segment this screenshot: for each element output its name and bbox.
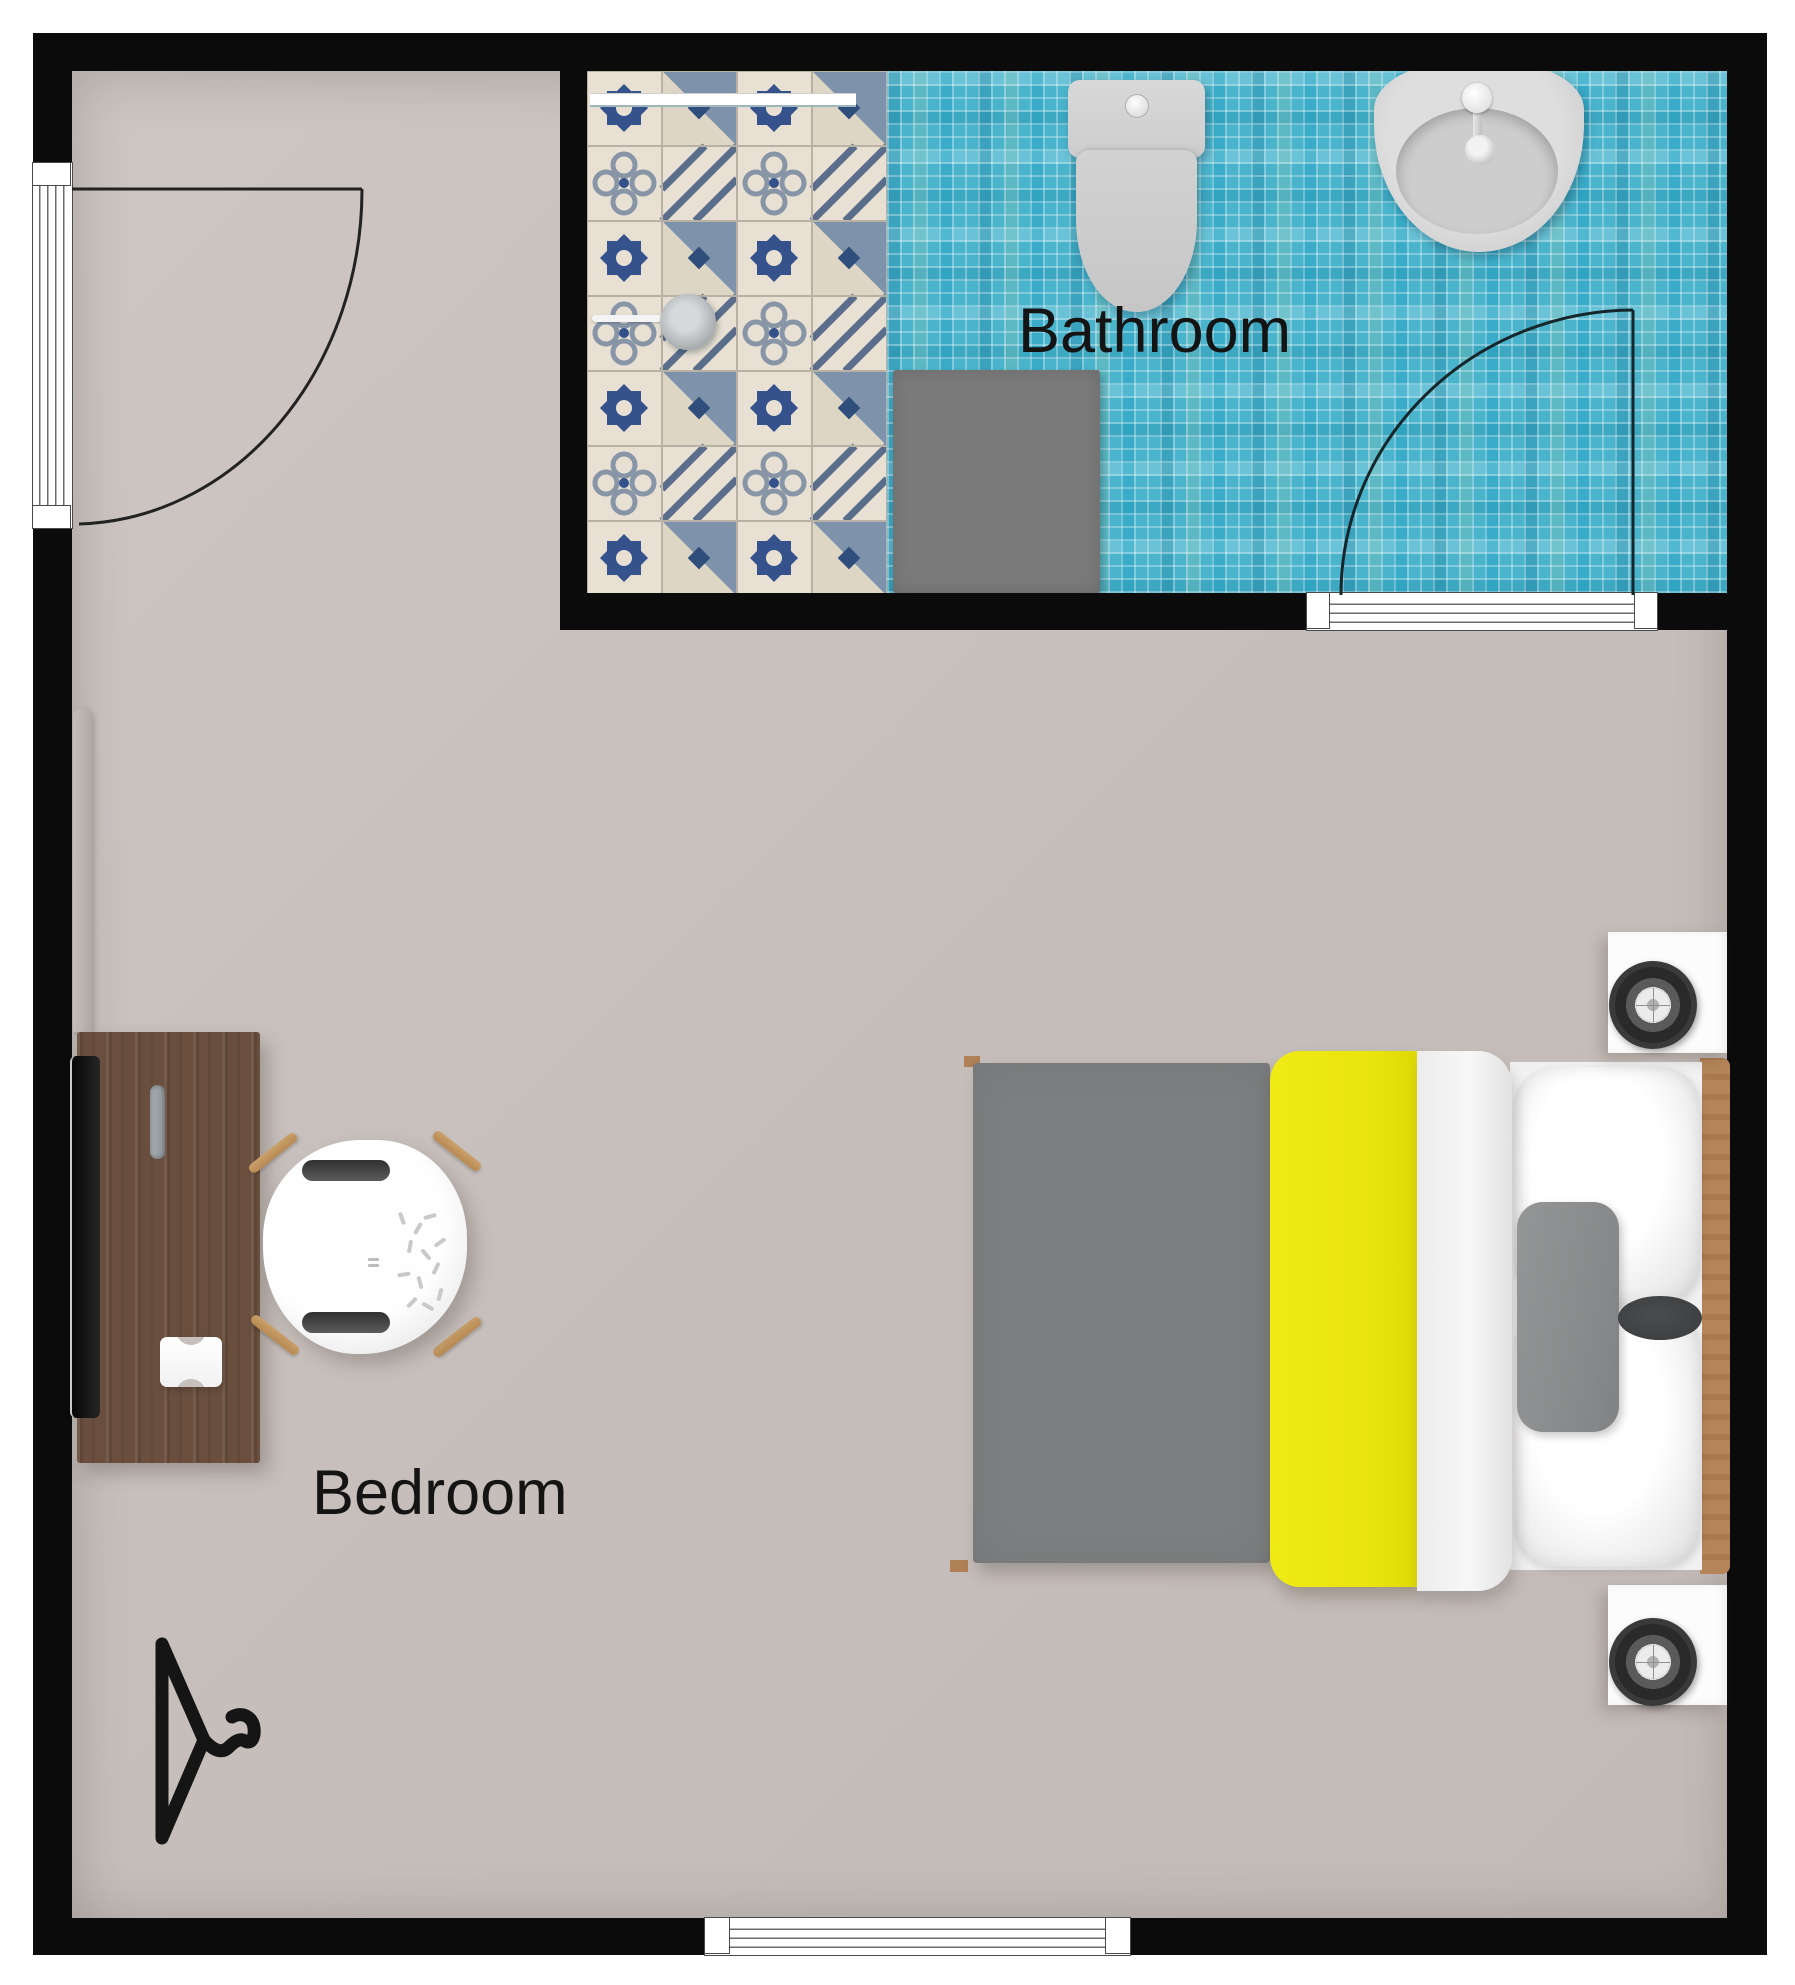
- entry-door-jamb-top: [32, 162, 71, 186]
- bed-accent-pillow: [1517, 1202, 1619, 1432]
- speaker-crosshair: [1653, 988, 1654, 1022]
- chair-mark: [368, 1264, 379, 1267]
- pencil-tray: [150, 1085, 165, 1159]
- window-jamb-left: [704, 1917, 730, 1954]
- bathroom-door-sill: [1307, 593, 1657, 630]
- toilet-cistern: [1068, 80, 1205, 158]
- bed-blanket-yellow-stripe: [1270, 1051, 1417, 1587]
- wall-bathroom-bottom-right: [1657, 593, 1727, 630]
- speaker-icon: [1609, 961, 1697, 1049]
- window-jamb-right: [1105, 1917, 1131, 1954]
- bathroom-door-jamb-left: [1306, 592, 1330, 629]
- desk: [77, 1032, 260, 1463]
- window: [705, 1918, 1130, 1955]
- bathroom-label: Bathroom: [1018, 300, 1291, 363]
- bed-blanket-white-stripe: [1417, 1051, 1512, 1591]
- sink-drain: [1465, 135, 1495, 165]
- shower-head-icon: [660, 294, 716, 350]
- wall-shelf-panel: [73, 708, 92, 1032]
- desk-accessory: [160, 1337, 222, 1387]
- bed-duvet: [973, 1063, 1270, 1563]
- bath-mat: [893, 370, 1100, 593]
- floor-plan: Bathroom Bedroom: [0, 0, 1795, 1985]
- bed-frame-corner: [950, 1560, 968, 1572]
- chair-mark: [368, 1258, 379, 1261]
- entry-door-jamb-bottom: [32, 505, 71, 529]
- wall-left-upper: [33, 33, 72, 163]
- wall-bathroom-left: [560, 33, 587, 630]
- chair-front-slot: [302, 1312, 390, 1333]
- bathroom-door-sill-lines: [1307, 600, 1657, 623]
- bed-pillow-knot: [1618, 1296, 1702, 1340]
- monitor: [70, 1056, 100, 1418]
- wall-bottom-left: [33, 1918, 705, 1955]
- bathroom-door-jamb-right: [1634, 592, 1658, 629]
- entry-door-sill-lines: [39, 163, 66, 528]
- wall-left-lower: [33, 528, 72, 1955]
- wall-top: [33, 33, 1767, 71]
- wall-right: [1727, 33, 1767, 1955]
- entry-door-sill: [33, 163, 72, 528]
- bed-headboard: [1700, 1058, 1730, 1574]
- wall-bottom-right: [1130, 1918, 1767, 1955]
- shower-tile-floor: [587, 71, 887, 593]
- toilet-flush-button: [1125, 94, 1149, 118]
- chair-back-slot: [302, 1160, 390, 1181]
- sink-faucet-knob: [1462, 83, 1492, 113]
- window-glazing-lines: [705, 1925, 1130, 1948]
- shower-screen: [590, 93, 856, 107]
- wall-bathroom-bottom-left: [587, 593, 1307, 630]
- speaker-icon: [1609, 1618, 1697, 1706]
- shower-arm: [592, 315, 670, 322]
- speaker-crosshair: [1653, 1645, 1654, 1679]
- bedroom-label: Bedroom: [312, 1462, 568, 1525]
